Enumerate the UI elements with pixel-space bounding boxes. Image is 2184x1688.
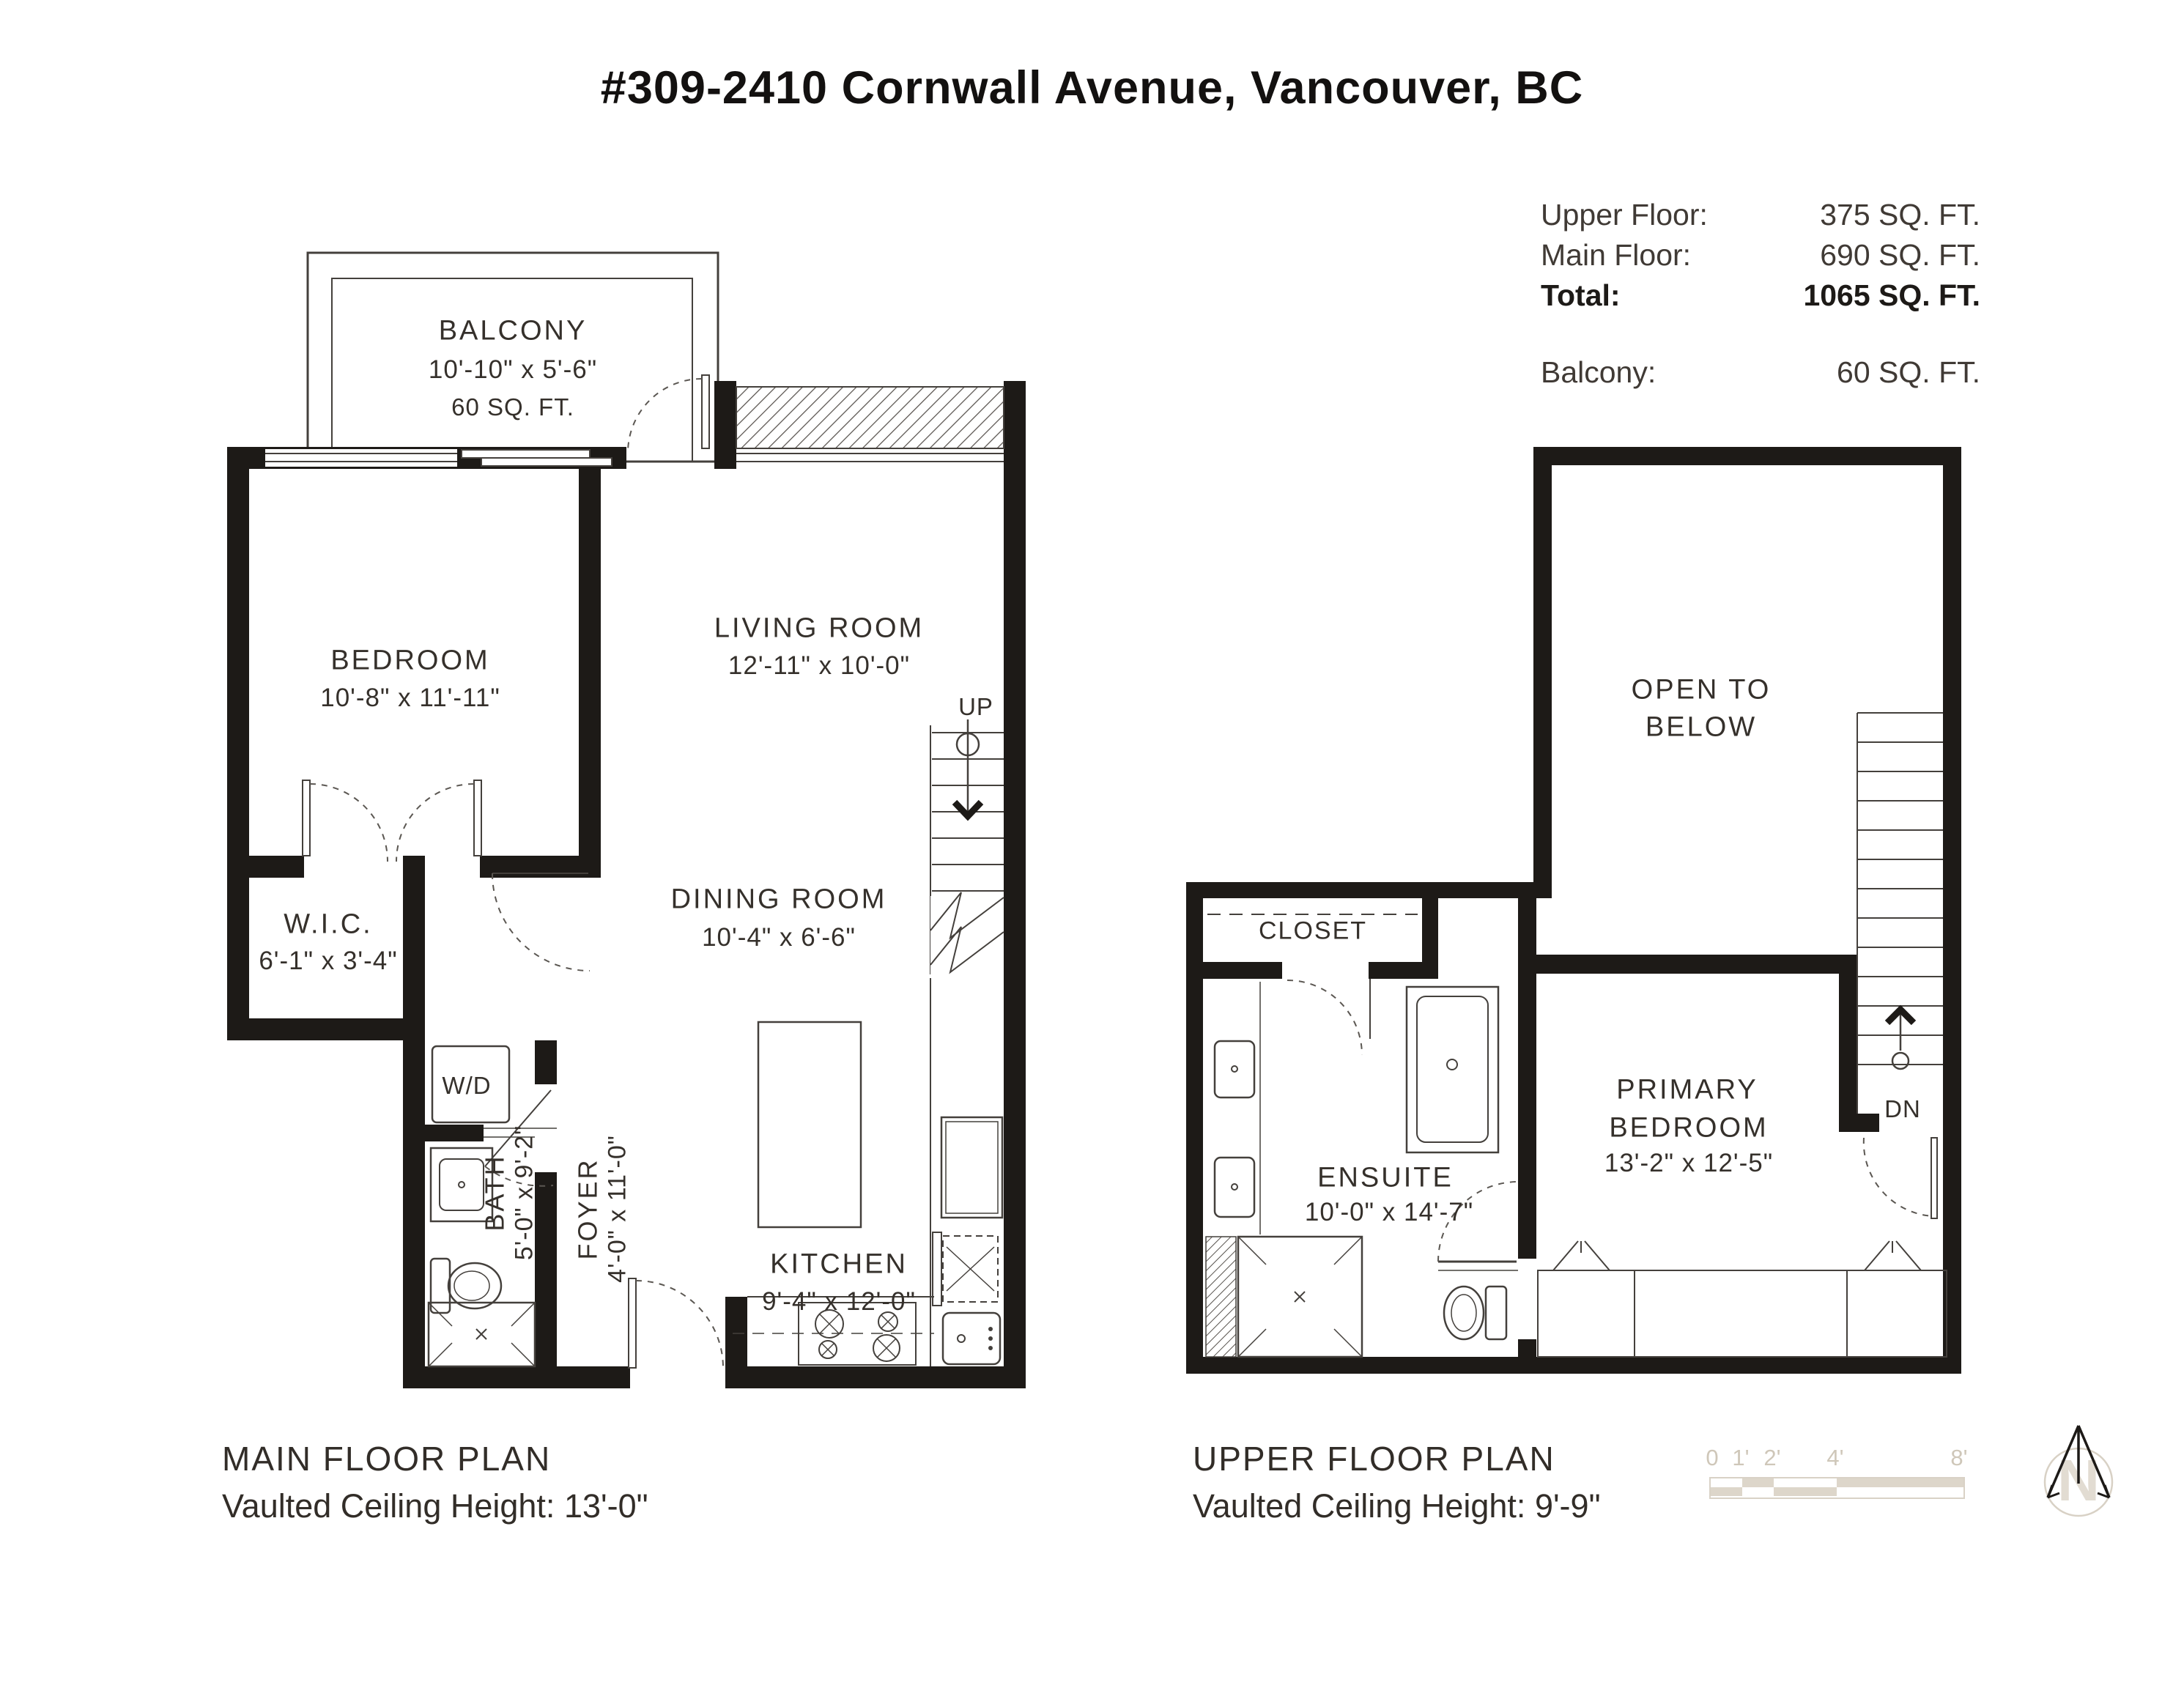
upper-walls <box>1186 447 1961 1374</box>
summary-row-total: Total: 1065 SQ. FT. <box>1541 275 1980 316</box>
dining-room-label: DINING ROOM <box>671 884 887 916</box>
living-room-dims: 12'-11" x 10'-0" <box>728 651 910 681</box>
scale-bar-rule <box>1709 1477 1965 1499</box>
main-floor-label: Main Floor: <box>1541 235 1691 275</box>
page-title: #309-2410 Cornwall Avenue, Vancouver, BC <box>0 62 2184 114</box>
closet-label: CLOSET <box>1259 917 1367 946</box>
bedroom-dims: 10'-8" x 11'-11" <box>320 684 500 713</box>
bedroom-label: BEDROOM <box>330 645 489 677</box>
total-value: 1065 SQ. FT. <box>1803 275 1980 316</box>
foyer-label: FOYER <box>573 1135 604 1283</box>
kitchen-dims: 9'-4" x 12'-0" <box>762 1287 916 1317</box>
primary-bedroom-line2: BEDROOM <box>1609 1113 1768 1144</box>
scale-tick-4: 4' <box>1826 1445 1843 1471</box>
balcony-area-label: Balcony: <box>1541 352 1656 393</box>
main-floor-value: 690 SQ. FT. <box>1820 235 1980 275</box>
living-room-label: LIVING ROOM <box>714 613 924 645</box>
bath-label: BATH <box>480 1125 511 1260</box>
scale-tick-1: 1' <box>1732 1445 1749 1471</box>
upper-floor-caption-title: UPPER FLOOR PLAN <box>1193 1439 1601 1478</box>
wd-label: W/D <box>442 1072 491 1100</box>
north-arrow-icon <box>2028 1413 2131 1530</box>
upper-floor-value: 375 SQ. FT. <box>1820 195 1980 235</box>
area-summary: Upper Floor: 375 SQ. FT. Main Floor: 690… <box>1541 195 1980 393</box>
scale-tick-2: 2' <box>1763 1445 1780 1471</box>
balcony-label: BALCONY <box>439 316 588 347</box>
stairs-down <box>1857 713 1943 1218</box>
summary-row-main: Main Floor: 690 SQ. FT. <box>1541 235 1980 275</box>
main-floor-ceiling-height: Vaulted Ceiling Height: 13'-0" <box>222 1487 648 1525</box>
main-floor-caption-title: MAIN FLOOR PLAN <box>222 1439 648 1478</box>
foyer-label-group: FOYER 4'-0" x 11'-0" <box>573 1135 632 1283</box>
balcony-area: 60 SQ. FT. <box>451 393 574 421</box>
upper-floor-caption: UPPER FLOOR PLAN Vaulted Ceiling Height:… <box>1193 1439 1601 1525</box>
scale-tick-8: 8' <box>1950 1445 1967 1471</box>
bath-dims: 5'-0" x 9'-2" <box>511 1125 539 1260</box>
summary-row-upper: Upper Floor: 375 SQ. FT. <box>1541 195 1980 235</box>
total-label: Total: <box>1541 275 1621 316</box>
primary-bedroom-dims: 13'-2" x 12'-5" <box>1604 1149 1773 1178</box>
main-floor-plan-drawing <box>220 242 1048 1436</box>
scale-bar: 0 1' 2' 4' 8' <box>1709 1445 1963 1506</box>
balcony-dims: 10'-10" x 5'-6" <box>429 355 597 385</box>
ensuite-label: ENSUITE <box>1317 1163 1454 1194</box>
kitchen-label: KITCHEN <box>770 1249 908 1281</box>
up-label: UP <box>958 693 993 721</box>
dining-room-dims: 10'-4" x 6'-6" <box>702 923 856 952</box>
floorplan-page: { "title": "#309-2410 Cornwall Avenue, V… <box>0 0 2184 1688</box>
open-to-below-line2: BELOW <box>1646 712 1757 744</box>
stairs-up <box>930 719 1004 974</box>
summary-row-balcony: Balcony: 60 SQ. FT. <box>1541 352 1980 393</box>
bath-label-group: BATH 5'-0" x 9'-2" <box>480 1125 539 1260</box>
upper-floor-ceiling-height: Vaulted Ceiling Height: 9'-9" <box>1193 1487 1601 1525</box>
wic-label: W.I.C. <box>284 909 372 941</box>
upper-floor-label: Upper Floor: <box>1541 195 1708 235</box>
main-floor-caption: MAIN FLOOR PLAN Vaulted Ceiling Height: … <box>222 1439 648 1525</box>
scale-tick-0: 0 <box>1706 1445 1718 1471</box>
ensuite-dims: 10'-0" x 14'-7" <box>1305 1198 1473 1227</box>
wardrobe-band <box>1538 1241 1947 1357</box>
foyer-dims: 4'-0" x 11'-0" <box>604 1135 632 1283</box>
summary-gap <box>1541 316 1980 352</box>
dn-label: DN <box>1884 1095 1921 1123</box>
balcony-area-value: 60 SQ. FT. <box>1837 352 1980 393</box>
primary-bedroom-line1: PRIMARY <box>1616 1075 1758 1106</box>
windows <box>265 387 1004 467</box>
wic-dims: 6'-1" x 3'-4" <box>259 947 397 976</box>
open-to-below-line1: OPEN TO <box>1632 675 1772 706</box>
